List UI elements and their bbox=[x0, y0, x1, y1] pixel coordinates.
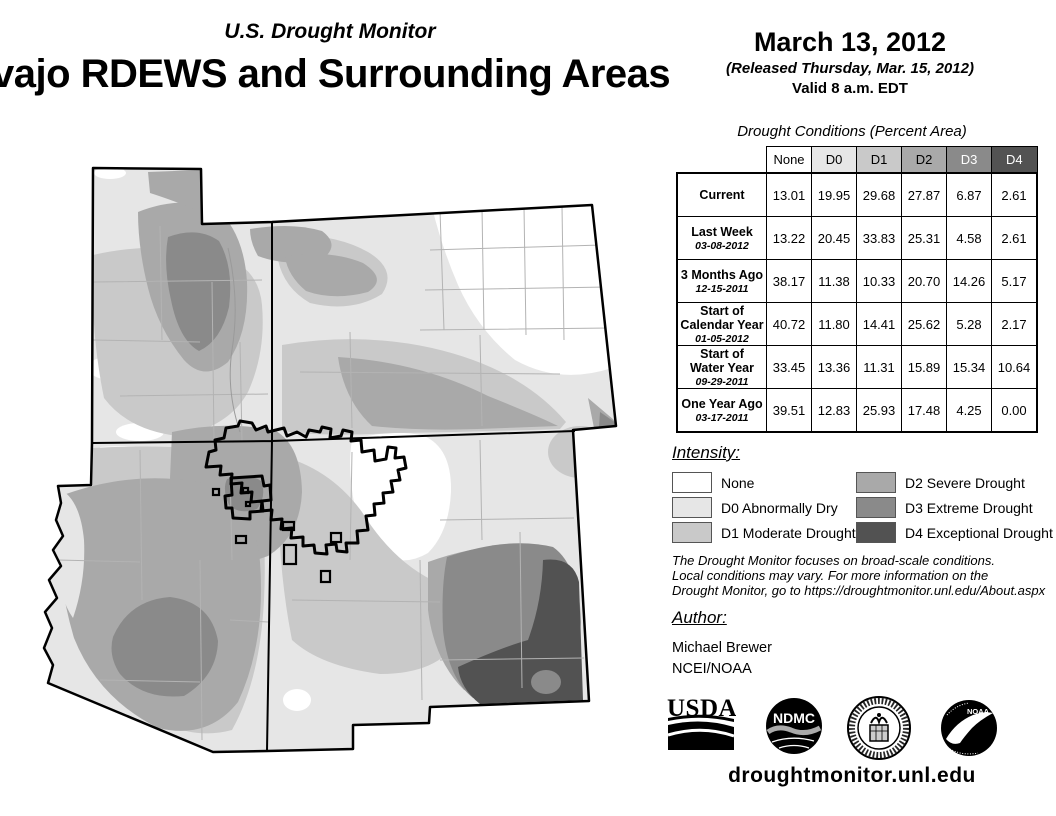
row-label-line: Current bbox=[678, 188, 766, 202]
legend-label: None bbox=[721, 475, 754, 491]
column-header-d3: D3 bbox=[947, 147, 992, 174]
drought-monitor-report: U.S. Drought Monitor vajo RDEWS and Surr… bbox=[0, 0, 1056, 816]
row-label: Current bbox=[677, 173, 767, 217]
table-cell: 4.25 bbox=[947, 389, 992, 433]
legend-label: D2 Severe Drought bbox=[905, 475, 1025, 491]
row-label-line: Start of bbox=[678, 304, 766, 318]
commerce-seal-logo bbox=[846, 695, 912, 761]
table-cell: 15.89 bbox=[902, 346, 947, 389]
legend-item: D2 Severe Drought bbox=[856, 472, 1040, 493]
usda-logo: USDA bbox=[666, 694, 736, 756]
table-cell: 12.83 bbox=[812, 389, 857, 433]
table-row: One Year Ago03-17-201139.5112.8325.9317.… bbox=[677, 389, 1037, 433]
table-header: NoneD0D1D2D3D4 bbox=[677, 147, 1037, 174]
row-label-line: 3 Months Ago bbox=[678, 268, 766, 282]
column-header-d4: D4 bbox=[992, 147, 1038, 174]
disclaimer-line: Drought Monitor, go to https://droughtmo… bbox=[672, 583, 1052, 598]
program-title: U.S. Drought Monitor bbox=[60, 20, 600, 44]
table-cell: 5.28 bbox=[947, 303, 992, 346]
report-date: March 13, 2012 bbox=[700, 28, 1000, 58]
row-label-line: Water Year bbox=[678, 361, 766, 375]
row-label-line: Last Week bbox=[678, 225, 766, 239]
row-label: Start ofWater Year09-29-2011 bbox=[677, 346, 767, 389]
table-caption: Drought Conditions (Percent Area) bbox=[676, 123, 1028, 140]
table-cell: 11.80 bbox=[812, 303, 857, 346]
drought-conditions-table: NoneD0D1D2D3D4 Current13.0119.9529.6827.… bbox=[676, 146, 1038, 433]
table-cell: 25.93 bbox=[857, 389, 902, 433]
noaa-logo: NOAA bbox=[938, 697, 1000, 759]
column-header-none: None bbox=[767, 147, 812, 174]
disclaimer-line: Local conditions may vary. For more info… bbox=[672, 568, 1052, 583]
legend-swatch bbox=[856, 522, 896, 543]
table-row: Current13.0119.9529.6827.876.872.61 bbox=[677, 173, 1037, 217]
table-cell: 4.58 bbox=[947, 217, 992, 260]
table-cell: 33.45 bbox=[767, 346, 812, 389]
intensity-legend: Intensity: NoneD0 Abnormally DryD1 Moder… bbox=[672, 443, 1042, 545]
valid-time: Valid 8 a.m. EDT bbox=[700, 80, 1000, 97]
disclaimer-line: The Drought Monitor focuses on broad-sca… bbox=[672, 553, 1052, 568]
table-cell: 2.61 bbox=[992, 217, 1038, 260]
table-row: 3 Months Ago12-15-201138.1711.3810.3320.… bbox=[677, 260, 1037, 303]
legend-swatch bbox=[672, 472, 712, 493]
table-cell: 39.51 bbox=[767, 389, 812, 433]
table-cell: 27.87 bbox=[902, 173, 947, 217]
disclaimer-text: The Drought Monitor focuses on broad-sca… bbox=[672, 553, 1052, 598]
date-block: March 13, 2012 (Released Thursday, Mar. … bbox=[700, 28, 1000, 97]
drought-shading bbox=[30, 150, 660, 810]
table-row: Last Week03-08-201213.2220.4533.8325.314… bbox=[677, 217, 1037, 260]
table-cell: 40.72 bbox=[767, 303, 812, 346]
column-header-d1: D1 bbox=[857, 147, 902, 174]
column-header-d0: D0 bbox=[812, 147, 857, 174]
table-cell: 25.62 bbox=[902, 303, 947, 346]
table-cell: 2.17 bbox=[992, 303, 1038, 346]
legend-item: D3 Extreme Drought bbox=[856, 497, 1040, 518]
table-cell: 13.36 bbox=[812, 346, 857, 389]
row-label-line: Start of bbox=[678, 347, 766, 361]
drought-map-svg bbox=[0, 135, 660, 816]
table-cell: 33.83 bbox=[857, 217, 902, 260]
table-cell: 29.68 bbox=[857, 173, 902, 217]
table-cell: 20.45 bbox=[812, 217, 857, 260]
legend-grid: NoneD0 Abnormally DryD1 Moderate Drought… bbox=[672, 470, 1042, 545]
ndmc-logo-text: NDMC bbox=[773, 710, 815, 726]
website-url: droughtmonitor.unl.edu bbox=[676, 764, 1028, 788]
legend-item: None bbox=[672, 472, 856, 493]
row-label: Start ofCalendar Year01-05-2012 bbox=[677, 303, 767, 346]
legend-label: D0 Abnormally Dry bbox=[721, 500, 838, 516]
table-cell: 38.17 bbox=[767, 260, 812, 303]
table-cell: 6.87 bbox=[947, 173, 992, 217]
legend-swatch bbox=[856, 472, 896, 493]
legend-swatch bbox=[672, 522, 712, 543]
table-cell: 2.61 bbox=[992, 173, 1038, 217]
table-cell: 15.34 bbox=[947, 346, 992, 389]
ndmc-logo: NDMC bbox=[764, 696, 824, 756]
table-cell: 13.22 bbox=[767, 217, 812, 260]
row-date: 12-15-2011 bbox=[678, 283, 766, 295]
legend-label: D3 Extreme Drought bbox=[905, 500, 1033, 516]
drought-map bbox=[0, 135, 660, 816]
row-date: 01-05-2012 bbox=[678, 333, 766, 345]
legend-title: Intensity: bbox=[672, 443, 1042, 463]
author-block: Author: Michael Brewer NCEI/NOAA bbox=[672, 608, 772, 677]
legend-swatch bbox=[672, 497, 712, 518]
table-cell: 20.70 bbox=[902, 260, 947, 303]
legend-item: D1 Moderate Drought bbox=[672, 522, 856, 543]
release-date: (Released Thursday, Mar. 15, 2012) bbox=[700, 60, 1000, 77]
author-title: Author: bbox=[672, 608, 772, 628]
table-cell: 17.48 bbox=[902, 389, 947, 433]
table-cell: 14.26 bbox=[947, 260, 992, 303]
table-cell: 0.00 bbox=[992, 389, 1038, 433]
table-cell: 14.41 bbox=[857, 303, 902, 346]
column-header-d2: D2 bbox=[902, 147, 947, 174]
row-label: Last Week03-08-2012 bbox=[677, 217, 767, 260]
noaa-logo-text: NOAA bbox=[967, 707, 990, 716]
legend-label: D1 Moderate Drought bbox=[721, 525, 856, 541]
table-row: Start ofWater Year09-29-201133.4513.3611… bbox=[677, 346, 1037, 389]
table-corner-cell bbox=[677, 147, 767, 174]
table-cell: 25.31 bbox=[902, 217, 947, 260]
row-label-line: One Year Ago bbox=[678, 397, 766, 411]
table-cell: 10.33 bbox=[857, 260, 902, 303]
table-cell: 10.64 bbox=[992, 346, 1038, 389]
legend-item: D0 Abnormally Dry bbox=[672, 497, 856, 518]
row-date: 03-17-2011 bbox=[678, 412, 766, 424]
table-cell: 13.01 bbox=[767, 173, 812, 217]
row-label: One Year Ago03-17-2011 bbox=[677, 389, 767, 433]
author-name: Michael Brewer bbox=[672, 640, 772, 656]
row-label-line: Calendar Year bbox=[678, 318, 766, 332]
legend-label: D4 Exceptional Drought bbox=[905, 525, 1053, 541]
row-label: 3 Months Ago12-15-2011 bbox=[677, 260, 767, 303]
table-cell: 19.95 bbox=[812, 173, 857, 217]
table-cell: 11.38 bbox=[812, 260, 857, 303]
table-cell: 11.31 bbox=[857, 346, 902, 389]
row-date: 09-29-2011 bbox=[678, 376, 766, 388]
legend-swatch bbox=[856, 497, 896, 518]
legend-item: D4 Exceptional Drought bbox=[856, 522, 1040, 543]
table-cell: 5.17 bbox=[992, 260, 1038, 303]
row-date: 03-08-2012 bbox=[678, 240, 766, 252]
author-org: NCEI/NOAA bbox=[672, 661, 772, 677]
region-title: vajo RDEWS and Surrounding Areas bbox=[0, 52, 670, 97]
table-row: Start ofCalendar Year01-05-201240.7211.8… bbox=[677, 303, 1037, 346]
